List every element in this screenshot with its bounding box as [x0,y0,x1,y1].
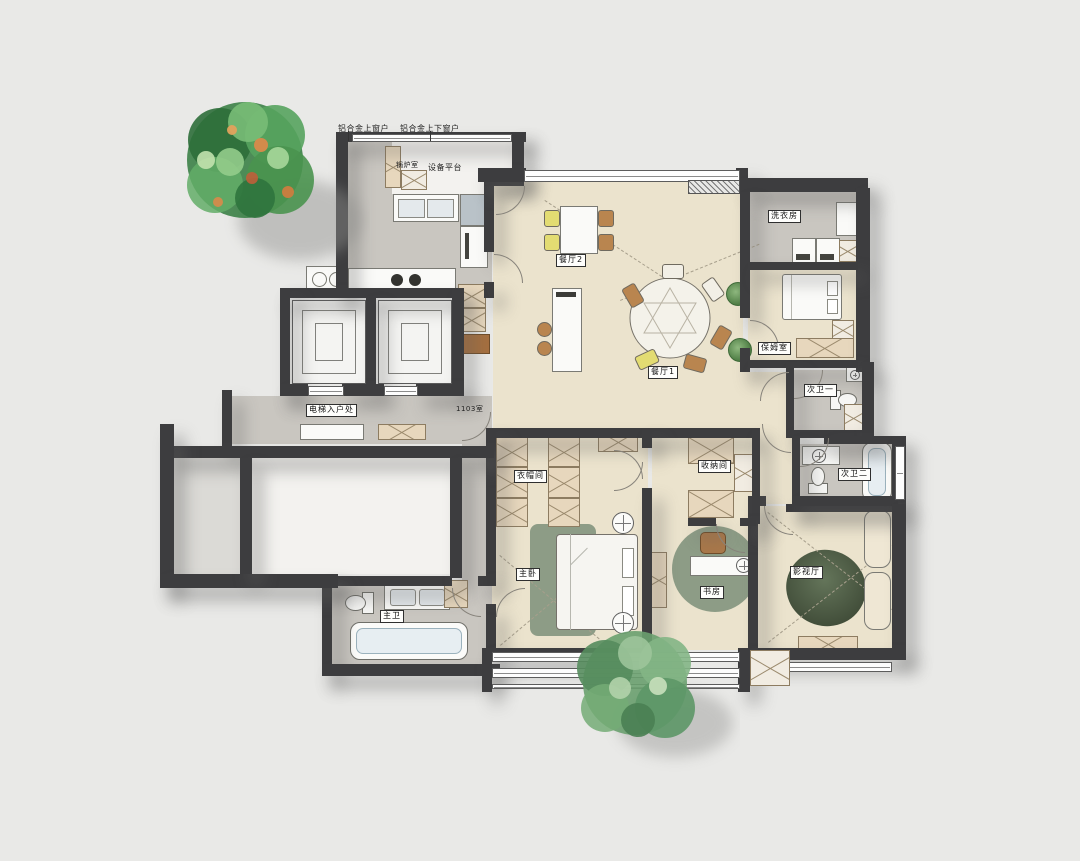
chaise-lounge [864,572,891,630]
room-label-dining1: 餐厅1 [648,366,678,379]
laundry-cabinet [836,202,858,236]
pillow [827,281,838,296]
room-label-dining2: 餐厅2 [556,254,586,267]
dining-table-2 [560,206,598,254]
pillow [827,299,838,314]
wall [740,192,750,318]
wardrobe [496,436,528,467]
wall [862,362,874,438]
elevator-door [384,386,418,396]
wall [160,574,338,588]
master-vanity [384,584,450,610]
wall [856,188,870,372]
room-label-laundry: 洗衣房 [768,210,801,223]
wall [486,604,496,650]
room-label-master-bath: 主卫 [380,610,404,623]
elevator-shaft [292,300,366,384]
window-spec-note: 铝合金上下窗户 [400,123,460,134]
shaft-box [750,650,790,686]
dryer [816,238,840,264]
room-label-closet: 衣帽间 [514,470,547,483]
wardrobe [548,467,580,498]
room-label-elevator-entry: 电梯入户处 [306,404,357,417]
chair [544,210,560,227]
window-bath2 [895,446,905,500]
tv-cabinet [650,552,667,608]
room-label-storage: 收纳间 [698,460,731,473]
floor-public-lobby-left [174,458,240,574]
wall [484,282,494,298]
room-label-equipment: 设备平台 [428,162,462,173]
stool [537,341,552,356]
bathtub [350,622,468,660]
chaise-lounge [864,510,891,568]
sink-bowl [398,199,425,218]
wall [748,360,858,368]
chair [662,264,684,279]
toilet [810,468,828,494]
wall [892,504,906,656]
floor-plan-canvas: 餐厅2 餐厅1 洗衣房 保姆室 次卫一 次卫二 [0,0,1080,861]
dining-table-1 [628,276,712,360]
wall [322,664,500,676]
nanny-cabinet [796,338,854,358]
wall [342,384,384,396]
wall [484,186,494,252]
wall [482,648,492,692]
wall [740,178,868,192]
floor-corridor-south [462,444,488,586]
room-label-study: 书房 [700,586,724,599]
entry-bench [300,424,364,440]
pillow [622,548,634,578]
room-label-bath2: 次卫二 [838,468,871,481]
wall [222,390,232,450]
wall [280,288,290,394]
boiler-unit [401,170,427,190]
unit-number: 1103室 [456,404,483,414]
wall [478,576,496,586]
tree-canopy-top-left [160,70,370,290]
nanny-bed [782,274,842,320]
room-label-master-bedroom: 主卧 [516,568,540,581]
cabinet-handle [465,233,469,259]
wall [478,168,526,182]
wardrobe [548,498,580,527]
blanket-fold [791,275,793,319]
wall [322,576,452,586]
stool [537,322,552,337]
toilet [346,592,374,612]
wall [688,518,716,526]
kitchen-sink-counter [393,194,459,222]
sink-bowl [427,199,454,218]
wardrobe [548,436,580,467]
wall [322,576,332,676]
wall [280,384,308,396]
wall [486,428,756,438]
shower-tray [844,404,863,431]
elevator-shaft [378,300,452,384]
room-label-media: 影视厅 [790,566,823,579]
wall [792,496,898,506]
wall [168,446,494,458]
window-top-kitchen [352,134,512,142]
wall [752,428,760,524]
wall [416,384,464,396]
shaft-hatch [688,180,740,194]
entry-mat [462,334,490,354]
shoe-cabinet [378,424,426,440]
room-label-nanny: 保姆室 [758,342,791,355]
elevator-door [308,386,344,396]
tree-canopy-bottom [550,608,740,778]
laundry-shaft [839,240,857,262]
island-counter [552,288,582,372]
wall [240,458,252,574]
chair [598,210,614,227]
washing-machine [792,238,816,264]
wall [452,288,464,394]
wall [748,262,858,270]
machine-front [820,254,834,260]
island-band [556,292,576,297]
storage-cabinet [688,490,734,518]
burner [391,274,403,286]
room-label-bath1: 次卫一 [804,384,837,397]
bedside-lamp [612,512,634,534]
sink-bowl [419,589,445,606]
wardrobe [496,498,528,527]
burner [409,274,421,286]
wall [824,436,896,444]
nanny-ac-unit [832,320,854,340]
chair [598,234,614,251]
chair [544,234,560,251]
room-label-boiler: 锅炉室 [396,160,419,170]
wall [450,458,462,578]
sink-bowl [390,589,416,606]
wall [366,296,376,386]
machine-front [796,254,810,260]
wall [160,424,174,588]
wall [642,428,652,448]
